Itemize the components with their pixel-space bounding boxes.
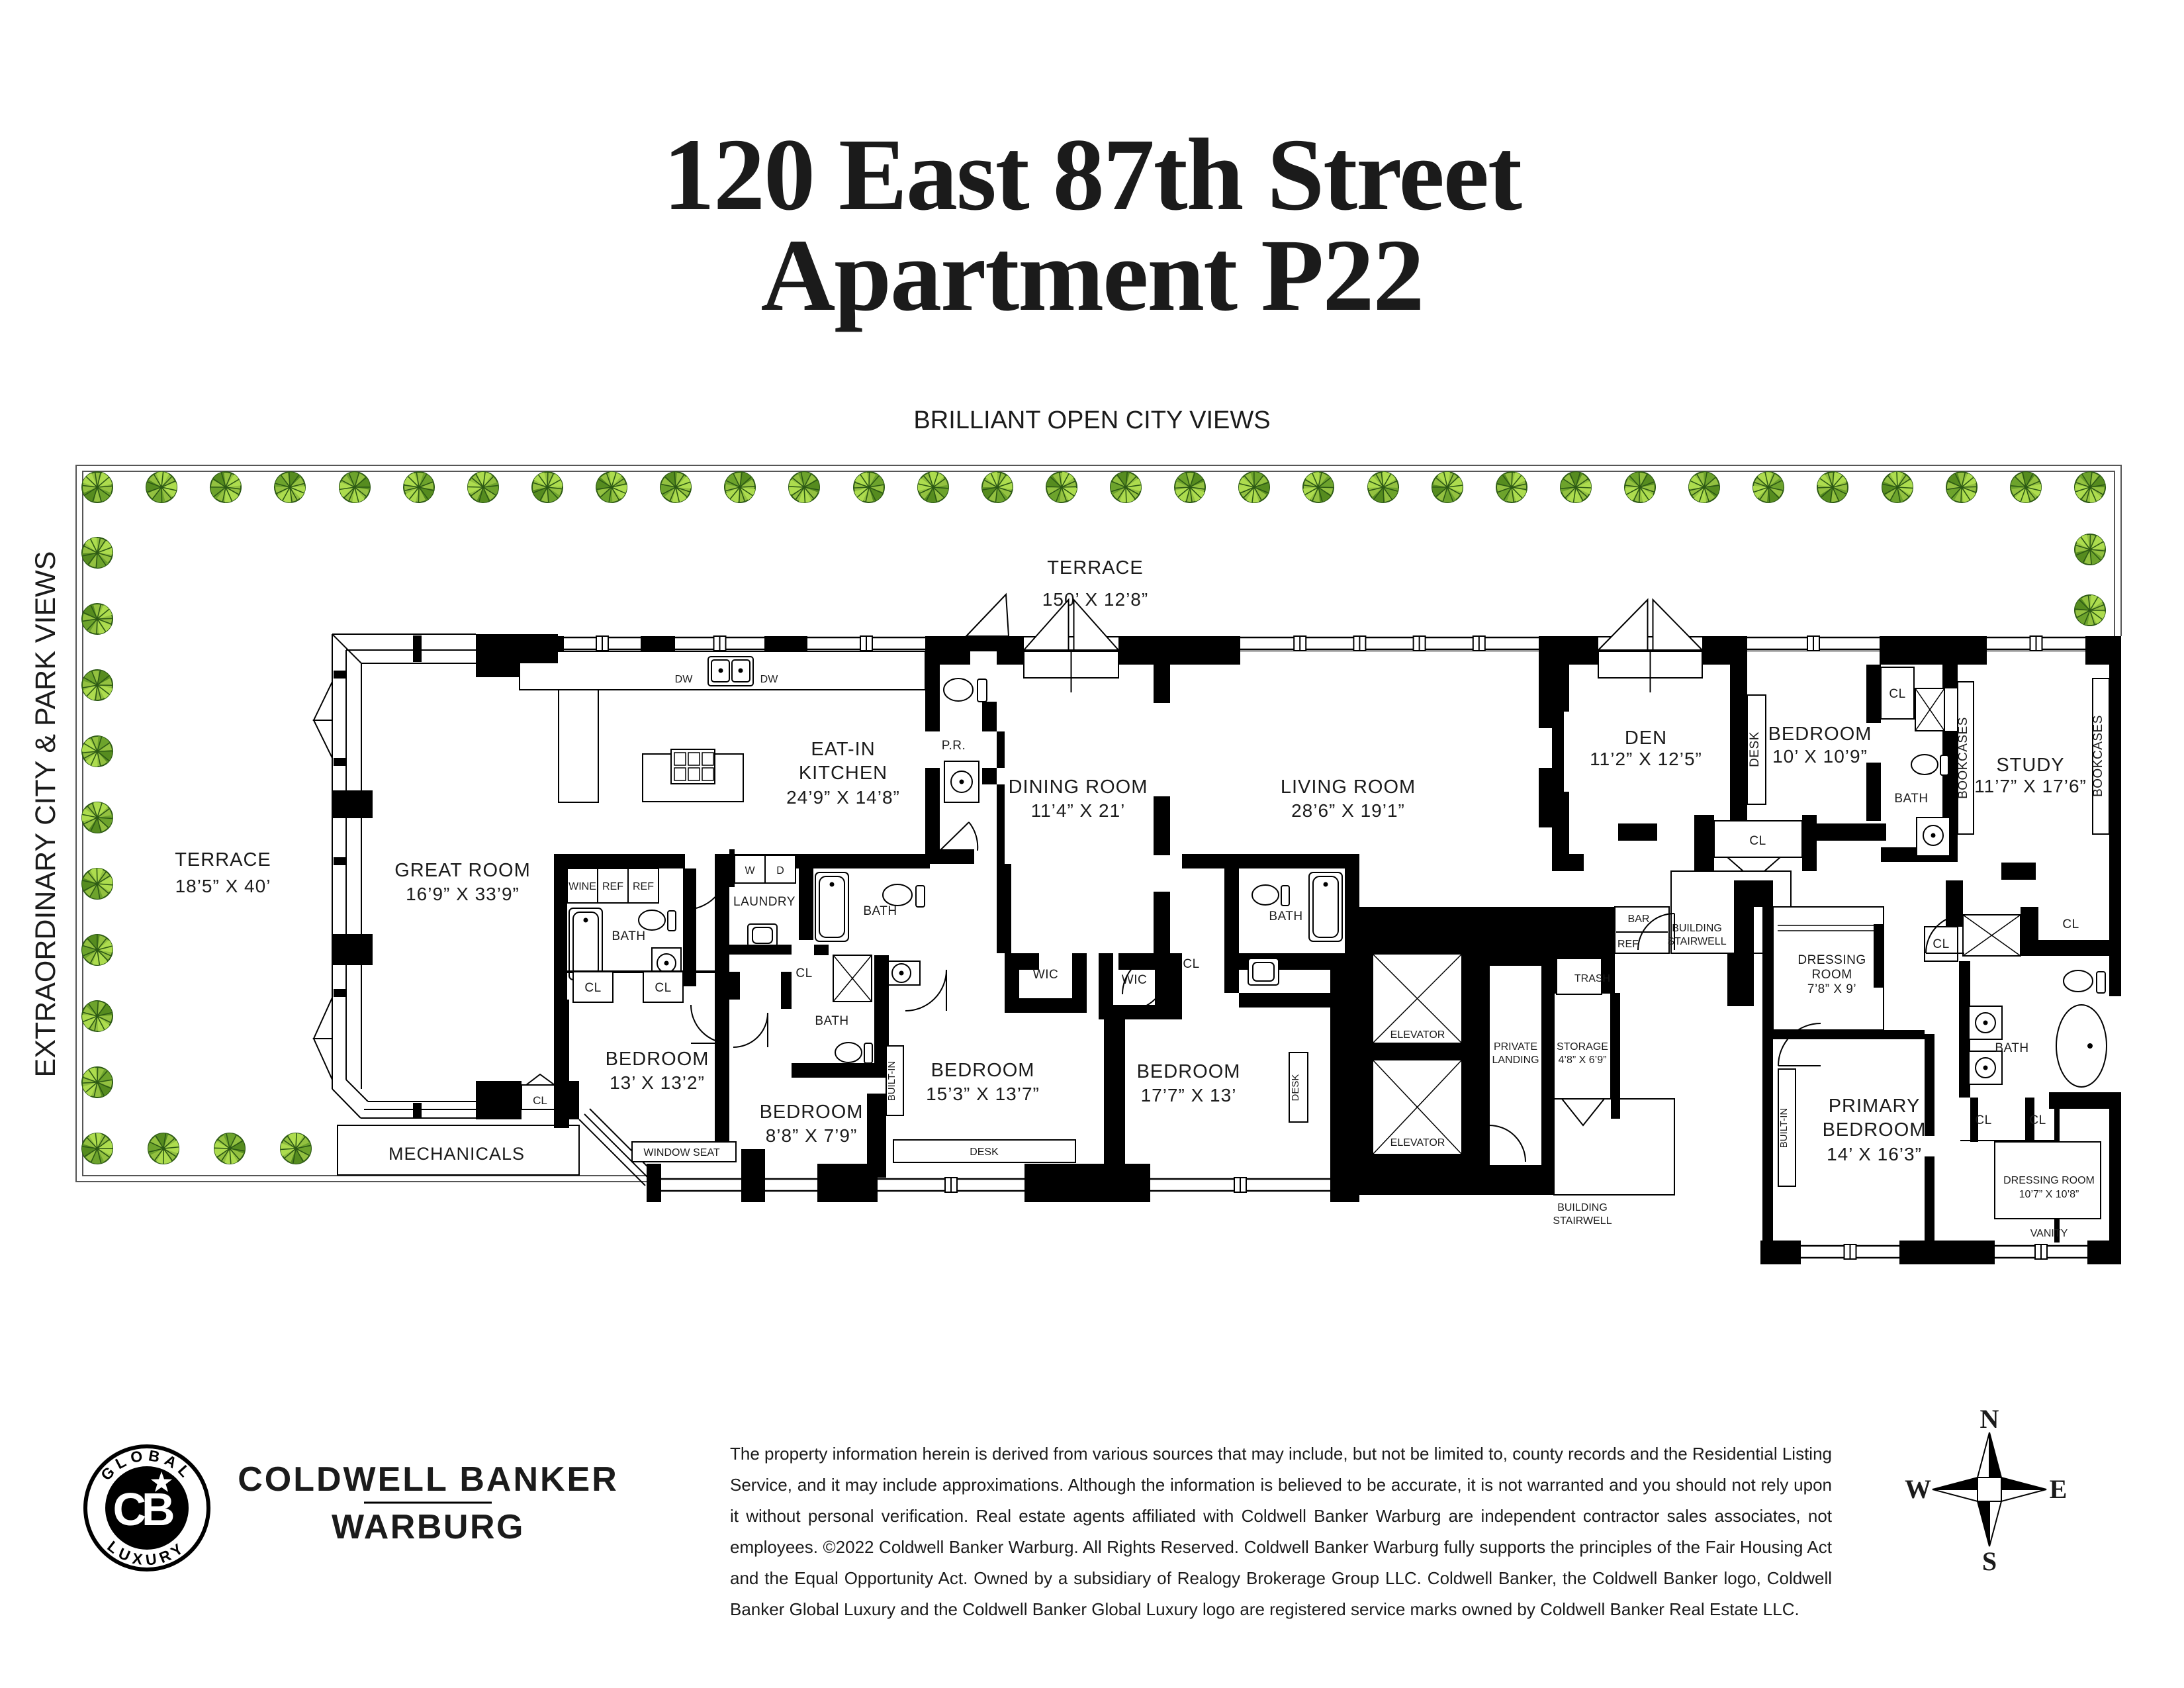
svg-text:TERRACE: TERRACE [175, 849, 271, 870]
svg-text:150’ X 12’8”: 150’ X 12’8” [1042, 589, 1148, 610]
svg-text:CL: CL [1749, 834, 1766, 848]
svg-text:LAUNDRY: LAUNDRY [733, 895, 796, 909]
svg-text:8’8” X 7’9”: 8’8” X 7’9” [766, 1125, 858, 1146]
svg-text:EAT-IN: EAT-IN [811, 739, 875, 760]
svg-text:CL: CL [1975, 1113, 1991, 1127]
svg-text:STAIRWELL: STAIRWELL [1553, 1215, 1612, 1227]
svg-text:KITCHEN: KITCHEN [799, 763, 887, 784]
svg-text:14’ X 16’3”: 14’ X 16’3” [1827, 1144, 1922, 1164]
svg-text:4’8” X 6’9”: 4’8” X 6’9” [1559, 1055, 1607, 1066]
svg-text:REF: REF [602, 881, 623, 892]
svg-text:CL: CL [655, 981, 671, 995]
svg-text:WINDOW SEAT: WINDOW SEAT [643, 1147, 719, 1158]
svg-text:BUILDING: BUILDING [1557, 1202, 1608, 1213]
svg-text:11’2” X 12’5”: 11’2” X 12’5” [1590, 749, 1702, 769]
svg-text:BUILDING: BUILDING [1672, 923, 1722, 934]
svg-text:LIVING ROOM: LIVING ROOM [1281, 776, 1416, 798]
svg-text:BAR: BAR [1628, 914, 1650, 925]
svg-text:DEN: DEN [1625, 727, 1667, 749]
svg-text:VANITY: VANITY [2030, 1228, 2068, 1239]
svg-text:D: D [776, 865, 784, 876]
svg-text:CL: CL [796, 966, 812, 980]
svg-text:CL: CL [533, 1094, 547, 1107]
svg-text:BUILT-IN: BUILT-IN [1778, 1108, 1790, 1149]
svg-text:TRASH: TRASH [1574, 973, 1610, 984]
svg-text:N: N [1980, 1404, 1999, 1434]
svg-text:W: W [1905, 1474, 1931, 1504]
svg-text:Apartment P22: Apartment P22 [761, 218, 1424, 332]
svg-text:BATH: BATH [1894, 792, 1928, 806]
svg-text:BRILLIANT OPEN CITY VIEWS: BRILLIANT OPEN CITY VIEWS [913, 406, 1270, 434]
svg-text:DRESSING ROOM: DRESSING ROOM [2003, 1175, 2095, 1186]
svg-text:BATH: BATH [1269, 910, 1302, 923]
svg-text:18’5” X 40’: 18’5” X 40’ [175, 876, 271, 896]
svg-text:S: S [1982, 1546, 1997, 1576]
svg-text:ELEVATOR: ELEVATOR [1390, 1137, 1445, 1149]
svg-text:CL: CL [584, 981, 601, 995]
svg-text:120 East 87th Street: 120 East 87th Street [663, 117, 1522, 232]
svg-text:CL: CL [1889, 687, 1905, 701]
svg-text:BEDROOM: BEDROOM [1823, 1119, 1927, 1141]
svg-text:DINING ROOM: DINING ROOM [1009, 776, 1148, 798]
svg-text:28’6” X 19’1”: 28’6” X 19’1” [1291, 800, 1405, 821]
svg-text:DESK: DESK [1290, 1074, 1301, 1102]
svg-text:W: W [745, 865, 755, 876]
svg-text:PRIMARY: PRIMARY [1829, 1096, 1921, 1117]
svg-text:13’ X 13’2”: 13’ X 13’2” [610, 1072, 705, 1093]
svg-text:BATH: BATH [1995, 1041, 2028, 1055]
svg-text:LANDING: LANDING [1492, 1055, 1539, 1066]
svg-text:MECHANICALS: MECHANICALS [388, 1144, 525, 1164]
svg-text:CL: CL [2029, 1113, 2046, 1127]
svg-text:COLDWELL BANKER: COLDWELL BANKER [238, 1460, 619, 1499]
svg-text:DESK: DESK [970, 1147, 999, 1158]
svg-text:REF: REF [1617, 939, 1639, 950]
svg-text:STORAGE: STORAGE [1557, 1041, 1608, 1053]
svg-text:GREAT ROOM: GREAT ROOM [394, 860, 531, 881]
svg-text:WIC: WIC [1033, 968, 1058, 982]
svg-text:24’9” X 14’8”: 24’9” X 14’8” [786, 787, 900, 808]
svg-text:10’7” X 10’8”: 10’7” X 10’8” [2019, 1189, 2079, 1200]
svg-text:WARBURG: WARBURG [332, 1508, 525, 1546]
svg-text:WINE: WINE [569, 881, 596, 892]
svg-text:15’3” X 13’7”: 15’3” X 13’7” [926, 1084, 1040, 1104]
svg-text:BEDROOM: BEDROOM [760, 1102, 864, 1123]
svg-text:11’4” X 21’: 11’4” X 21’ [1031, 800, 1126, 821]
svg-text:BUILT-IN: BUILT-IN [886, 1061, 897, 1102]
svg-text:TERRACE: TERRACE [1047, 557, 1144, 579]
svg-text:BATH: BATH [612, 929, 645, 943]
svg-text:STUDY: STUDY [1996, 755, 2064, 776]
svg-text:BEDROOM: BEDROOM [606, 1049, 709, 1070]
svg-text:7’8” X 9’: 7’8” X 9’ [1807, 982, 1856, 996]
svg-text:BOOKCASES: BOOKCASES [2091, 715, 2105, 797]
svg-text:BEDROOM: BEDROOM [1768, 724, 1872, 745]
svg-text:BATH: BATH [863, 904, 897, 918]
svg-text:DRESSING: DRESSING [1797, 953, 1866, 967]
svg-text:BEDROOM: BEDROOM [931, 1060, 1035, 1081]
svg-text:DW: DW [675, 674, 694, 685]
svg-text:BOOKCASES: BOOKCASES [1956, 717, 1970, 799]
svg-text:CB: CB [113, 1483, 173, 1535]
svg-text:CL: CL [2062, 917, 2079, 931]
svg-text:17’7” X 13’: 17’7” X 13’ [1141, 1085, 1237, 1105]
svg-text:EXTRAORDINARY CITY & PARK VIEW: EXTRAORDINARY CITY & PARK VIEWS [30, 551, 62, 1078]
svg-text:ROOM: ROOM [1811, 968, 1852, 982]
svg-text:ELEVATOR: ELEVATOR [1390, 1029, 1445, 1041]
svg-text:STAIRWELL: STAIRWELL [1667, 936, 1726, 947]
svg-text:10’ X 10’9”: 10’ X 10’9” [1772, 746, 1868, 767]
svg-text:CL: CL [1933, 937, 1949, 951]
svg-text:E: E [2050, 1474, 2068, 1504]
svg-text:BATH: BATH [815, 1014, 848, 1028]
svg-text:16’9” X 33’9”: 16’9” X 33’9” [406, 884, 520, 904]
svg-text:BEDROOM: BEDROOM [1137, 1061, 1241, 1082]
svg-text:DESK: DESK [1748, 731, 1762, 767]
svg-text:DW: DW [760, 674, 779, 685]
svg-text:11’7” X 17’6”: 11’7” X 17’6” [1974, 776, 2087, 796]
svg-text:P.R.: P.R. [942, 739, 966, 753]
svg-text:CL: CL [1183, 957, 1199, 971]
svg-text:PRIVATE: PRIVATE [1494, 1041, 1537, 1053]
svg-text:REF: REF [633, 881, 654, 892]
